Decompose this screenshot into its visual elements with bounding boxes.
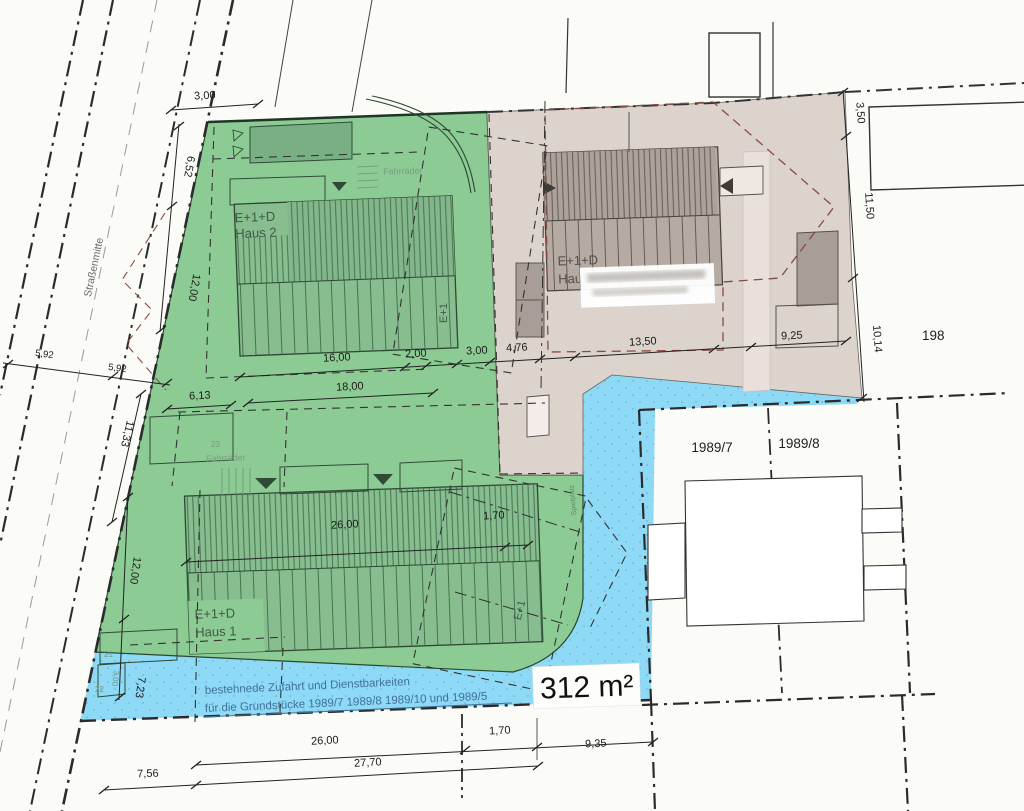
- access-path-edge-2: [352, 0, 372, 112]
- dim-9-25: 9,25: [781, 329, 803, 342]
- dim-9-35: 9,35: [585, 737, 607, 750]
- neighbour-building-top: [709, 33, 760, 97]
- dim-3-00-small: 3,00: [110, 670, 121, 687]
- area-badge: 312 m²: [532, 663, 640, 709]
- access-path-edge-1: [275, 0, 293, 107]
- top-vertical-line-2: [566, 18, 568, 93]
- area-value: 312 m²: [540, 669, 634, 705]
- building-haus2: E+1+D Haus 2: [234, 196, 458, 356]
- parcel-label-198-partial: 198: [922, 328, 945, 343]
- dim-18-00: 18,00: [336, 380, 364, 393]
- terrace-box: [720, 166, 763, 196]
- dim-26-00-inner: 26,00: [331, 518, 359, 531]
- house-1989: [648, 476, 906, 626]
- shed-21-label: 21: [104, 650, 113, 659]
- garage-gray-right: [797, 231, 838, 306]
- parcel-label-1989-7: 1989/7: [691, 440, 732, 455]
- haus1-label-line1: E+1+D: [194, 605, 235, 621]
- site-plan: Straßenmitte E+1+D Haus 2: [0, 0, 1024, 811]
- dim-16-00: 16,00: [323, 351, 351, 364]
- dim-5-92-b: 5,92: [107, 362, 127, 375]
- haus2-label-line2: Haus 2: [235, 225, 277, 242]
- dim-1-70-inner: 1,70: [483, 509, 505, 522]
- boundary-top-right: [845, 83, 1024, 92]
- street-centerline-label: Straßenmitte: [82, 237, 106, 298]
- dim-6-52: 6,52: [181, 155, 197, 178]
- dim-26-00-bottom: 26,00: [311, 734, 339, 747]
- e1-label-haus2: E+1: [438, 303, 450, 323]
- dim-1-70-bottom: 1,70: [489, 724, 511, 737]
- haus2-label-line1: E+1+D: [234, 209, 275, 226]
- dim-3-50: 3,50: [853, 102, 866, 124]
- fahrraeder-label-mid: Fahrräder: [206, 452, 246, 463]
- dim-2-00: 2,00: [405, 347, 427, 360]
- dim-7-56: 7,56: [137, 768, 159, 781]
- dim-27-70: 27,70: [354, 756, 382, 769]
- haus3-label-line2: Hau: [558, 271, 582, 287]
- garage-building: [250, 122, 352, 163]
- dim-3-00-chain: 3,00: [466, 344, 488, 357]
- site-plan-drawing: Straßenmitte E+1+D Haus 2: [0, 0, 1024, 811]
- dim-11-50: 11,50: [862, 192, 876, 219]
- dim-13-50: 13,50: [629, 335, 657, 348]
- dim-11-33: 11,33: [118, 419, 136, 448]
- dim-4-76: 4,76: [506, 341, 528, 354]
- dim-10-14: 10,14: [870, 325, 884, 353]
- haus1-label-line2: Haus 1: [195, 623, 237, 639]
- garage-gray-left-1: [516, 263, 544, 300]
- dim-5-92-a: 5,92: [34, 348, 54, 361]
- street-line-1: [0, 0, 83, 395]
- fahrraeder-label-top: Fahrräder: [383, 165, 423, 176]
- shed-22-label: 22: [95, 685, 104, 694]
- small-white-box: [527, 395, 549, 437]
- haus3-label-line1: E+1+D: [557, 252, 598, 268]
- building-haus3: E+1+D Hau: [543, 147, 723, 309]
- neighbour-building-right: [869, 102, 1024, 190]
- shed-23-label: 23: [211, 440, 220, 449]
- dim-3-00-top: 3,00: [194, 89, 216, 102]
- parcel-label-1989-8: 1989/8: [778, 436, 819, 451]
- dim-6-13: 6,13: [189, 389, 211, 402]
